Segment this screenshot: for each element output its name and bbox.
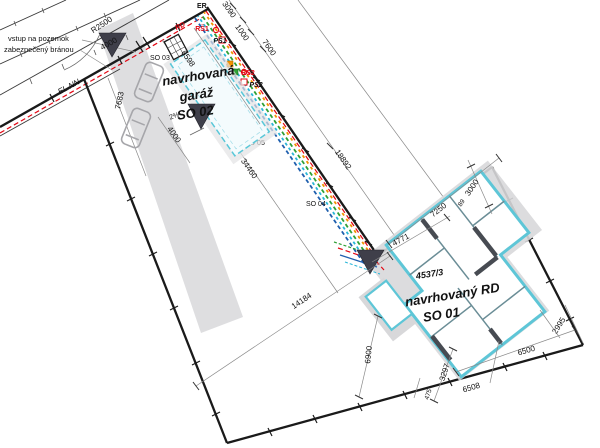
entrance-note-line2: zabezpečený bránou <box>4 45 74 54</box>
ps1-label: PŠ1 <box>213 36 226 45</box>
er-label: ER <box>197 3 207 10</box>
so03-label: SO 03 <box>150 55 170 62</box>
site-plan-drawing: vstup na pozemok zabezpečený bránou R250… <box>0 0 600 448</box>
rs1-label: RŠ1 <box>195 24 209 33</box>
so04-label: SO 04 <box>306 201 326 208</box>
dimension-6900: 6900 <box>363 345 374 364</box>
site-plan-canvas: vstup na pozemok zabezpečený bránou R250… <box>0 0 600 448</box>
ps2-label: PŠ2 <box>249 80 262 89</box>
entrance-note-line1: vstup na pozemok <box>8 34 69 43</box>
rs2-label: RŠ2 <box>241 68 255 77</box>
